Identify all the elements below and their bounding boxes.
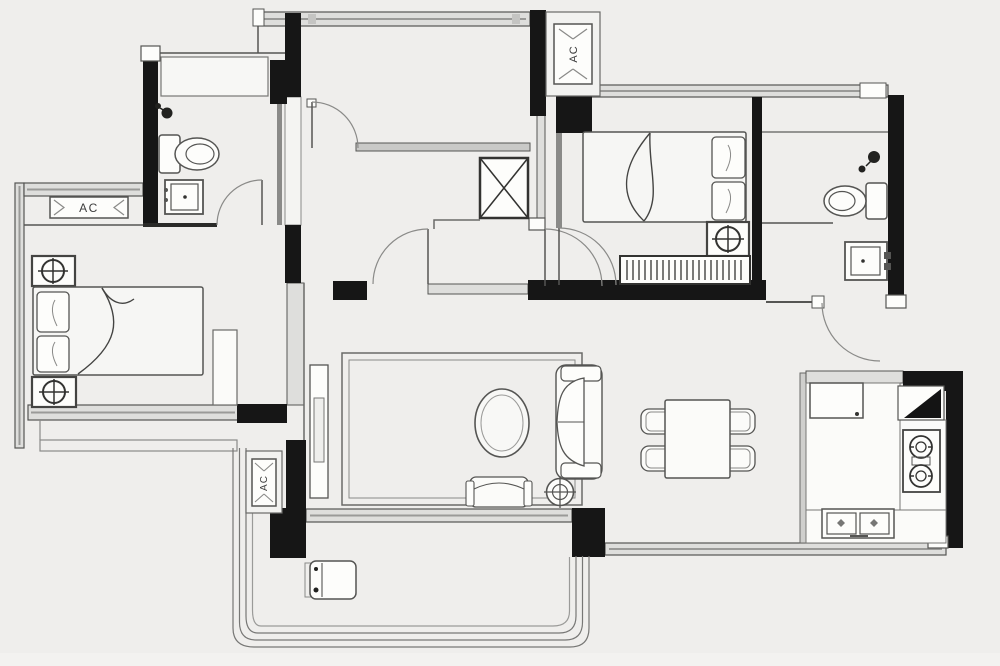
washer-knob bbox=[314, 567, 318, 571]
wall-segment bbox=[946, 371, 963, 548]
faucet bbox=[884, 263, 891, 270]
pillow-icon bbox=[712, 137, 745, 178]
bed-icon bbox=[33, 287, 203, 375]
ac-unit-icon: AC bbox=[546, 12, 600, 96]
page-edge bbox=[0, 653, 1000, 666]
toilet-tank bbox=[866, 183, 887, 219]
wall-cap bbox=[886, 295, 906, 308]
washer-knob bbox=[314, 588, 319, 593]
wall-cap bbox=[141, 46, 160, 61]
wall-segment bbox=[285, 225, 301, 283]
wall-segment bbox=[530, 10, 546, 116]
stove-icon bbox=[903, 430, 940, 492]
washer-body bbox=[310, 561, 356, 599]
shower-head-icon bbox=[859, 166, 866, 173]
bench-icon bbox=[466, 477, 532, 507]
wall-segment bbox=[143, 60, 158, 225]
fridge-handle bbox=[855, 412, 859, 416]
wall-cap bbox=[253, 9, 264, 26]
sink-drain bbox=[861, 259, 865, 263]
nightstand-lamp-icon bbox=[707, 222, 749, 256]
ac-unit-icon: AC bbox=[50, 197, 128, 218]
wall-segment bbox=[285, 13, 301, 97]
toilet-bowl-inner bbox=[829, 192, 855, 211]
wardrobe bbox=[213, 330, 237, 405]
dining-table-icon bbox=[665, 400, 730, 478]
stove-body bbox=[903, 430, 940, 492]
window-tick bbox=[308, 14, 316, 24]
sink-inner bbox=[851, 247, 880, 275]
wall-cavity bbox=[285, 97, 301, 225]
sink-icon bbox=[164, 180, 203, 214]
wall-segment bbox=[237, 404, 287, 423]
faucet bbox=[884, 252, 891, 259]
toilet-bowl-inner bbox=[186, 144, 214, 164]
dresser-hatch-icon bbox=[620, 256, 750, 284]
wall-segment bbox=[556, 95, 592, 133]
corner-cabinet-icon bbox=[898, 386, 944, 420]
thin-wall bbox=[428, 284, 528, 294]
pillow-icon bbox=[712, 182, 745, 220]
tv-screen bbox=[314, 398, 324, 462]
wall-segment bbox=[888, 95, 904, 307]
coffee-table bbox=[475, 389, 529, 457]
ac-label: AC bbox=[568, 45, 580, 62]
thin-wall bbox=[287, 283, 304, 405]
thin-wall bbox=[556, 133, 562, 228]
sofa-icon bbox=[556, 365, 602, 479]
washing-machine-icon bbox=[305, 561, 356, 599]
thin-wall bbox=[277, 104, 282, 225]
sink-drain bbox=[183, 195, 187, 199]
bench-arm bbox=[524, 481, 532, 506]
window-tick bbox=[512, 14, 520, 24]
wall-segment bbox=[143, 223, 217, 227]
bench-arm bbox=[466, 481, 474, 506]
nightstand-lamp-icon bbox=[32, 256, 75, 286]
wall-segment bbox=[333, 281, 367, 300]
wall-segment bbox=[286, 440, 306, 558]
wall-cap bbox=[529, 218, 545, 230]
floorplan-canvas: AC AC AC bbox=[0, 0, 1000, 666]
thin-wall bbox=[806, 371, 903, 383]
sink-icon bbox=[845, 242, 891, 280]
shower-tray bbox=[161, 57, 268, 96]
toilet-icon bbox=[159, 135, 219, 173]
ac-label: AC bbox=[259, 475, 270, 491]
kitchen bbox=[806, 383, 946, 543]
wall-segment bbox=[752, 97, 762, 280]
ac-unit-icon: AC bbox=[246, 451, 282, 513]
faucet bbox=[164, 188, 168, 192]
bench-seat bbox=[470, 477, 528, 507]
wall-cap bbox=[860, 83, 886, 98]
thin-wall bbox=[800, 373, 806, 543]
thin-wall bbox=[356, 143, 530, 151]
coffee-table-icon bbox=[475, 389, 529, 457]
fridge-icon bbox=[810, 383, 863, 418]
kitchen-sink-icon bbox=[822, 509, 894, 538]
nightstand-lamp-icon bbox=[32, 377, 76, 407]
floorplan-drawing: AC AC AC bbox=[0, 0, 1000, 666]
bed-icon bbox=[583, 132, 746, 222]
wall-segment bbox=[270, 60, 287, 104]
wall-segment bbox=[572, 508, 605, 557]
tv-console-icon bbox=[310, 365, 328, 498]
thin-wall bbox=[537, 115, 545, 229]
faucet bbox=[164, 198, 168, 202]
toilet-icon bbox=[824, 183, 887, 219]
ac-label: AC bbox=[79, 201, 99, 215]
wall-segment bbox=[270, 508, 287, 558]
